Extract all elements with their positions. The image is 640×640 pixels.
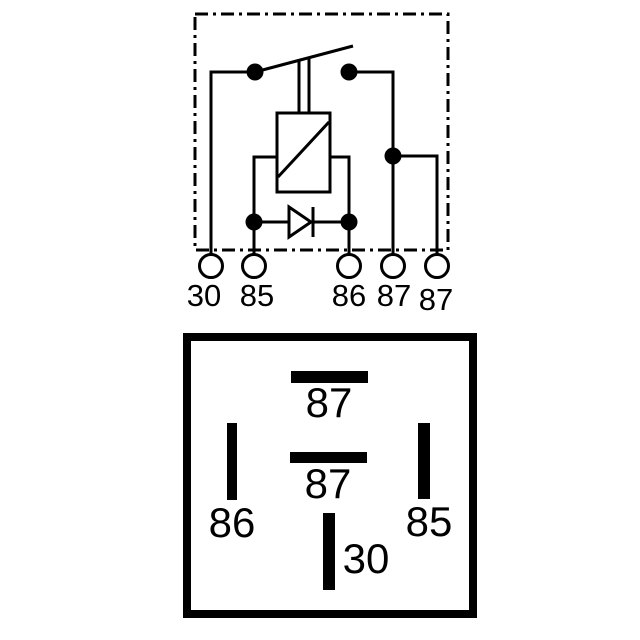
wire-terminal-87b (393, 156, 437, 254)
pin-label-85: 85 (406, 498, 453, 545)
junction-dot (385, 148, 402, 165)
diode-triangle (289, 207, 311, 237)
terminal-circle-30 (200, 255, 223, 278)
relay-schematic: 30 85 86 87 87 (187, 14, 453, 317)
terminal-label-86: 86 (332, 278, 366, 313)
pin-label-30: 30 (343, 535, 390, 582)
terminal-label-85: 85 (240, 278, 274, 313)
terminal-circle-85 (243, 255, 266, 278)
switch-arm-symbol (255, 46, 353, 72)
actuator-link-symbol (299, 57, 309, 113)
pin-label-86: 86 (209, 499, 256, 546)
terminal-circle-87 (382, 255, 405, 278)
wire-coil-right (330, 157, 349, 254)
junction-dot (341, 64, 358, 81)
wire-coil-left (254, 157, 277, 254)
relay-pin-layout: 87 87 86 85 30 (187, 337, 473, 614)
terminal-circle-86 (338, 255, 361, 278)
terminal-circle-87b (426, 255, 449, 278)
relay-diagram-canvas: 30 85 86 87 87 87 87 86 85 30 (0, 0, 640, 640)
pin-label-87-middle: 87 (305, 460, 352, 507)
junction-dot (341, 214, 358, 231)
diode-symbol (289, 207, 313, 237)
pin-blade-30-bottom (323, 513, 335, 590)
pin-blade-85-right (418, 423, 430, 499)
pin-label-87-top: 87 (306, 379, 353, 426)
junction-dot (247, 64, 264, 81)
terminal-label-87: 87 (377, 278, 411, 313)
coil-symbol (277, 113, 330, 192)
coil-body (277, 113, 330, 192)
terminal-label-30: 30 (187, 278, 221, 313)
junction-dot (246, 214, 263, 231)
pin-blade-86-left (227, 423, 237, 500)
terminal-label-87b: 87 (419, 282, 453, 317)
relay-diagram-page: 30 85 86 87 87 87 87 86 85 30 (0, 0, 640, 640)
